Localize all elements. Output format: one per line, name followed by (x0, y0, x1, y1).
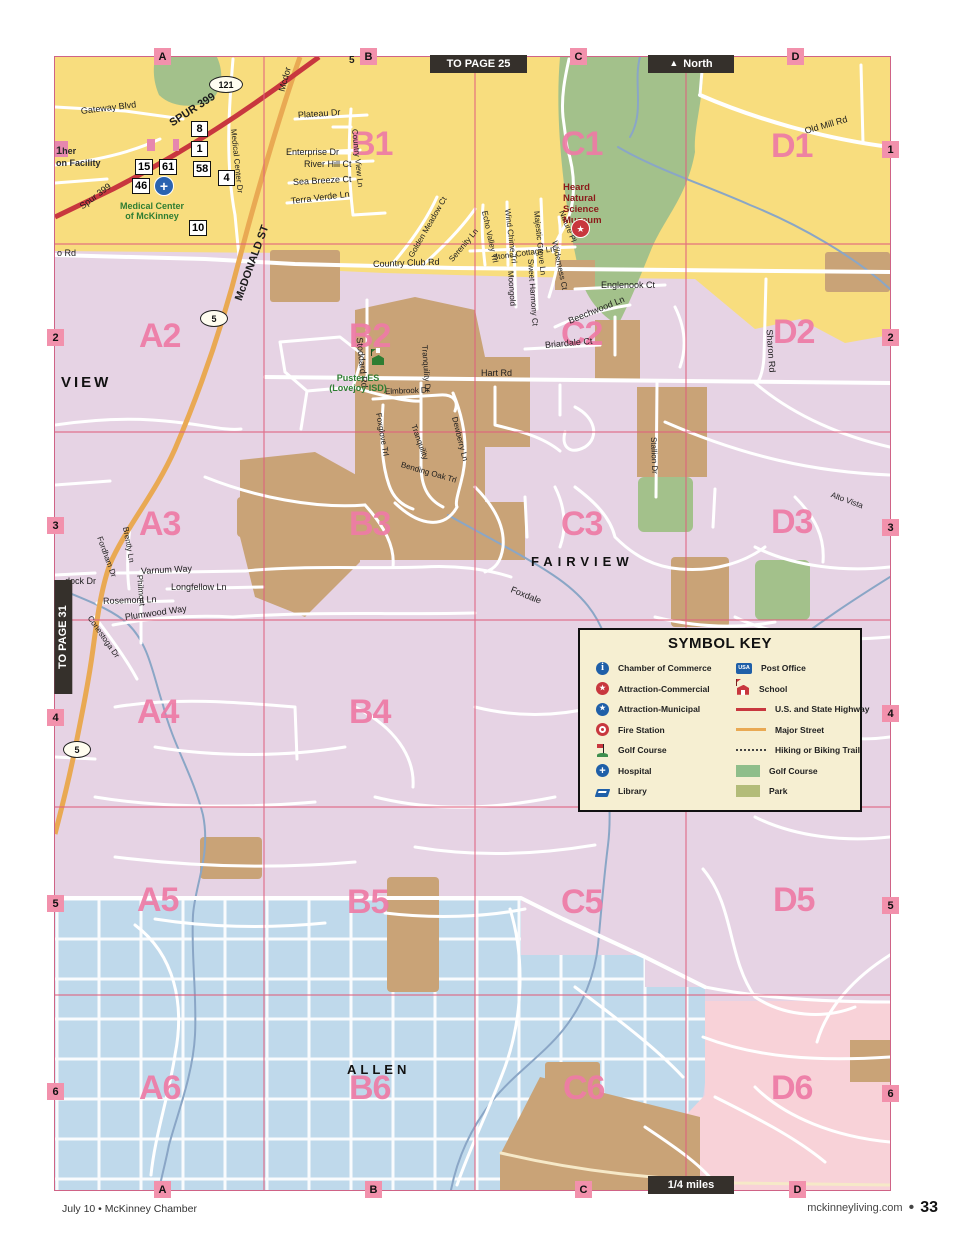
grid-cell-label: A6 (139, 1071, 180, 1105)
legend-label: Hospital (618, 766, 652, 776)
map-number-badge: 46 (132, 178, 150, 194)
route-shield: 5 (200, 310, 228, 327)
legend-row: iChamber of Commerce (596, 658, 720, 679)
legend-label: Golf Course (769, 766, 818, 776)
grid-marker-left: 2 (47, 329, 64, 346)
street-label: Hart Rd (481, 369, 512, 378)
grid-cell-label: D6 (771, 1071, 812, 1105)
fire-icon (596, 723, 609, 736)
street-label: 5 (349, 56, 355, 66)
map-number-badge: 61 (159, 159, 177, 175)
legend-row: Golf Course (736, 761, 860, 782)
grid-marker-top: A (154, 48, 171, 65)
city-label: ALLEN (347, 1063, 410, 1076)
grid-cell-label: C1 (561, 127, 602, 161)
golf-swatch-icon (736, 765, 760, 777)
route-shield: 121 (209, 76, 243, 93)
footer-website: mckinneyliving.com (807, 1202, 902, 1214)
grid-marker-bottom: A (154, 1181, 171, 1198)
grid-marker-left: 5 (47, 895, 64, 912)
legend-label: Major Street (775, 725, 824, 735)
north-arrow-icon: ▲ (669, 58, 678, 70)
grid-cell-label: A5 (137, 883, 178, 917)
grid-marker-right: 5 (882, 897, 899, 914)
hospital-icon: + (596, 764, 609, 777)
grid-cell-label: B5 (347, 885, 388, 919)
grid-cell-label: D3 (771, 505, 812, 539)
hospital-icon: + (154, 176, 174, 196)
north-indicator: ▲ North (648, 55, 734, 73)
street-label: Moongold (506, 271, 516, 307)
poi-puster-es-label: Puster ES (Lovejoy ISD) (313, 373, 403, 394)
legend-label: Library (618, 786, 647, 796)
grid-marker-bottom: B (365, 1181, 382, 1198)
grid-marker-right: 1 (882, 141, 899, 158)
grid-cell-label: A4 (137, 695, 178, 729)
grid-cell-label: B4 (349, 695, 390, 729)
street-label: Rosemont Ln (103, 595, 157, 606)
street-label: Enterprise Dr (286, 148, 339, 157)
attraction-commercial-icon: ★ (596, 682, 609, 695)
grid-cell-label: B3 (349, 507, 390, 541)
poi-facility-label: 1her on Facility (56, 145, 101, 168)
street-label: Stallion Dr (649, 437, 658, 474)
footer-page-number: 33 (920, 1199, 938, 1217)
street-map: 1her on Facility Medical Center of McKin… (55, 57, 890, 1190)
grid-cell-label: D5 (773, 883, 814, 917)
grid-cell-label: D2 (773, 315, 814, 349)
trail-line-icon (736, 749, 766, 751)
to-page-25-box: TO PAGE 25 (430, 55, 527, 73)
footer-site-text: mckinneyliving.com • 33 (807, 1199, 938, 1217)
legend-label: Hiking or Biking Trail (775, 745, 860, 755)
grid-marker-right: 2 (882, 329, 899, 346)
highway-line-icon (736, 708, 766, 711)
grid-marker-top: C (570, 48, 587, 65)
street-label: Longfellow Ln (171, 583, 227, 592)
attraction-star-icon: ★ (571, 219, 590, 238)
map-number-badge: 8 (191, 121, 208, 137)
building-mark (173, 139, 179, 151)
legend-label: Post Office (761, 663, 806, 673)
city-label: FAIRVIEW (531, 555, 634, 568)
grid-cell-label: C6 (563, 1071, 604, 1105)
symbol-key-left-column: iChamber of Commerce★Attraction-Commerci… (580, 658, 720, 802)
grid-marker-right: 3 (882, 519, 899, 536)
legend-label: School (759, 684, 787, 694)
legend-label: Golf Course (618, 745, 667, 755)
legend-row: U.S. and State Highway (736, 699, 860, 720)
post-office-icon: USA (736, 663, 752, 674)
grid-marker-bottom: D (789, 1181, 806, 1198)
city-label: VIEW (61, 375, 111, 390)
chamber-icon: i (596, 662, 609, 675)
route-shield: 5 (63, 741, 91, 758)
legend-row: Hiking or Biking Trail (736, 740, 860, 761)
grid-marker-top: D (787, 48, 804, 65)
grid-cell-label: C5 (561, 885, 602, 919)
map-number-badge: 10 (189, 220, 207, 236)
grid-marker-right: 6 (882, 1085, 899, 1102)
attraction-municipal-icon: ★ (596, 703, 609, 716)
legend-label: Attraction-Municipal (618, 704, 700, 714)
legend-label: Park (769, 786, 787, 796)
scale-bar: 1/4 miles (648, 1176, 734, 1194)
grid-marker-right: 4 (882, 705, 899, 722)
school-icon (736, 683, 750, 695)
legend-row: ★Attraction-Municipal (596, 699, 720, 720)
legend-row: Major Street (736, 720, 860, 741)
street-label: Englenook Ct (601, 281, 655, 290)
grid-marker-left: 6 (47, 1083, 64, 1100)
symbol-key-title: SYMBOL KEY (580, 635, 860, 652)
legend-row: ★Attraction-Commercial (596, 679, 720, 700)
footer-issue-text: July 10 • McKinney Chamber (62, 1203, 197, 1215)
park-swatch-icon (736, 785, 760, 797)
grid-cell-label: C3 (561, 507, 602, 541)
grid-marker-left: 4 (47, 709, 64, 726)
to-page-31-box: TO PAGE 31 (54, 580, 72, 694)
symbol-key-right-column: USAPost OfficeSchoolU.S. and State Highw… (720, 658, 860, 802)
map-number-badge: 4 (218, 170, 235, 186)
grid-marker-top: B (360, 48, 377, 65)
grid-cell-label: A2 (139, 319, 180, 353)
grid-cell-label: A3 (139, 507, 180, 541)
street-label: Sharon Rd (765, 329, 777, 373)
legend-row: Library (596, 781, 720, 802)
map-number-badge: 58 (193, 161, 211, 177)
legend-label: Fire Station (618, 725, 665, 735)
building-mark (147, 139, 155, 151)
map-number-badge: 15 (135, 159, 153, 175)
footer-bullet: • (909, 1199, 915, 1217)
street-label: River Hill Ct (304, 160, 352, 169)
poi-medical-center-label: Medical Center of McKinney (95, 201, 209, 222)
legend-row: Park (736, 781, 860, 802)
legend-row: USAPost Office (736, 658, 860, 679)
legend-label: Attraction-Commercial (618, 684, 710, 694)
legend-row: Golf Course (596, 740, 720, 761)
legend-label: U.S. and State Highway (775, 704, 869, 714)
map-number-badge: 1 (191, 141, 208, 157)
library-icon (596, 786, 609, 797)
legend-row: Fire Station (596, 720, 720, 741)
legend-row: +Hospital (596, 761, 720, 782)
legend-label: Chamber of Commerce (618, 663, 712, 673)
grid-marker-bottom: C (575, 1181, 592, 1198)
grid-marker-left: 3 (47, 517, 64, 534)
legend-row: School (736, 679, 860, 700)
symbol-key: SYMBOL KEY iChamber of Commerce★Attracti… (578, 628, 862, 812)
street-line-icon (736, 728, 766, 731)
street-label: Philmont (135, 575, 146, 607)
golf-flag-icon (596, 744, 609, 757)
street-label: o Rd (57, 249, 76, 258)
